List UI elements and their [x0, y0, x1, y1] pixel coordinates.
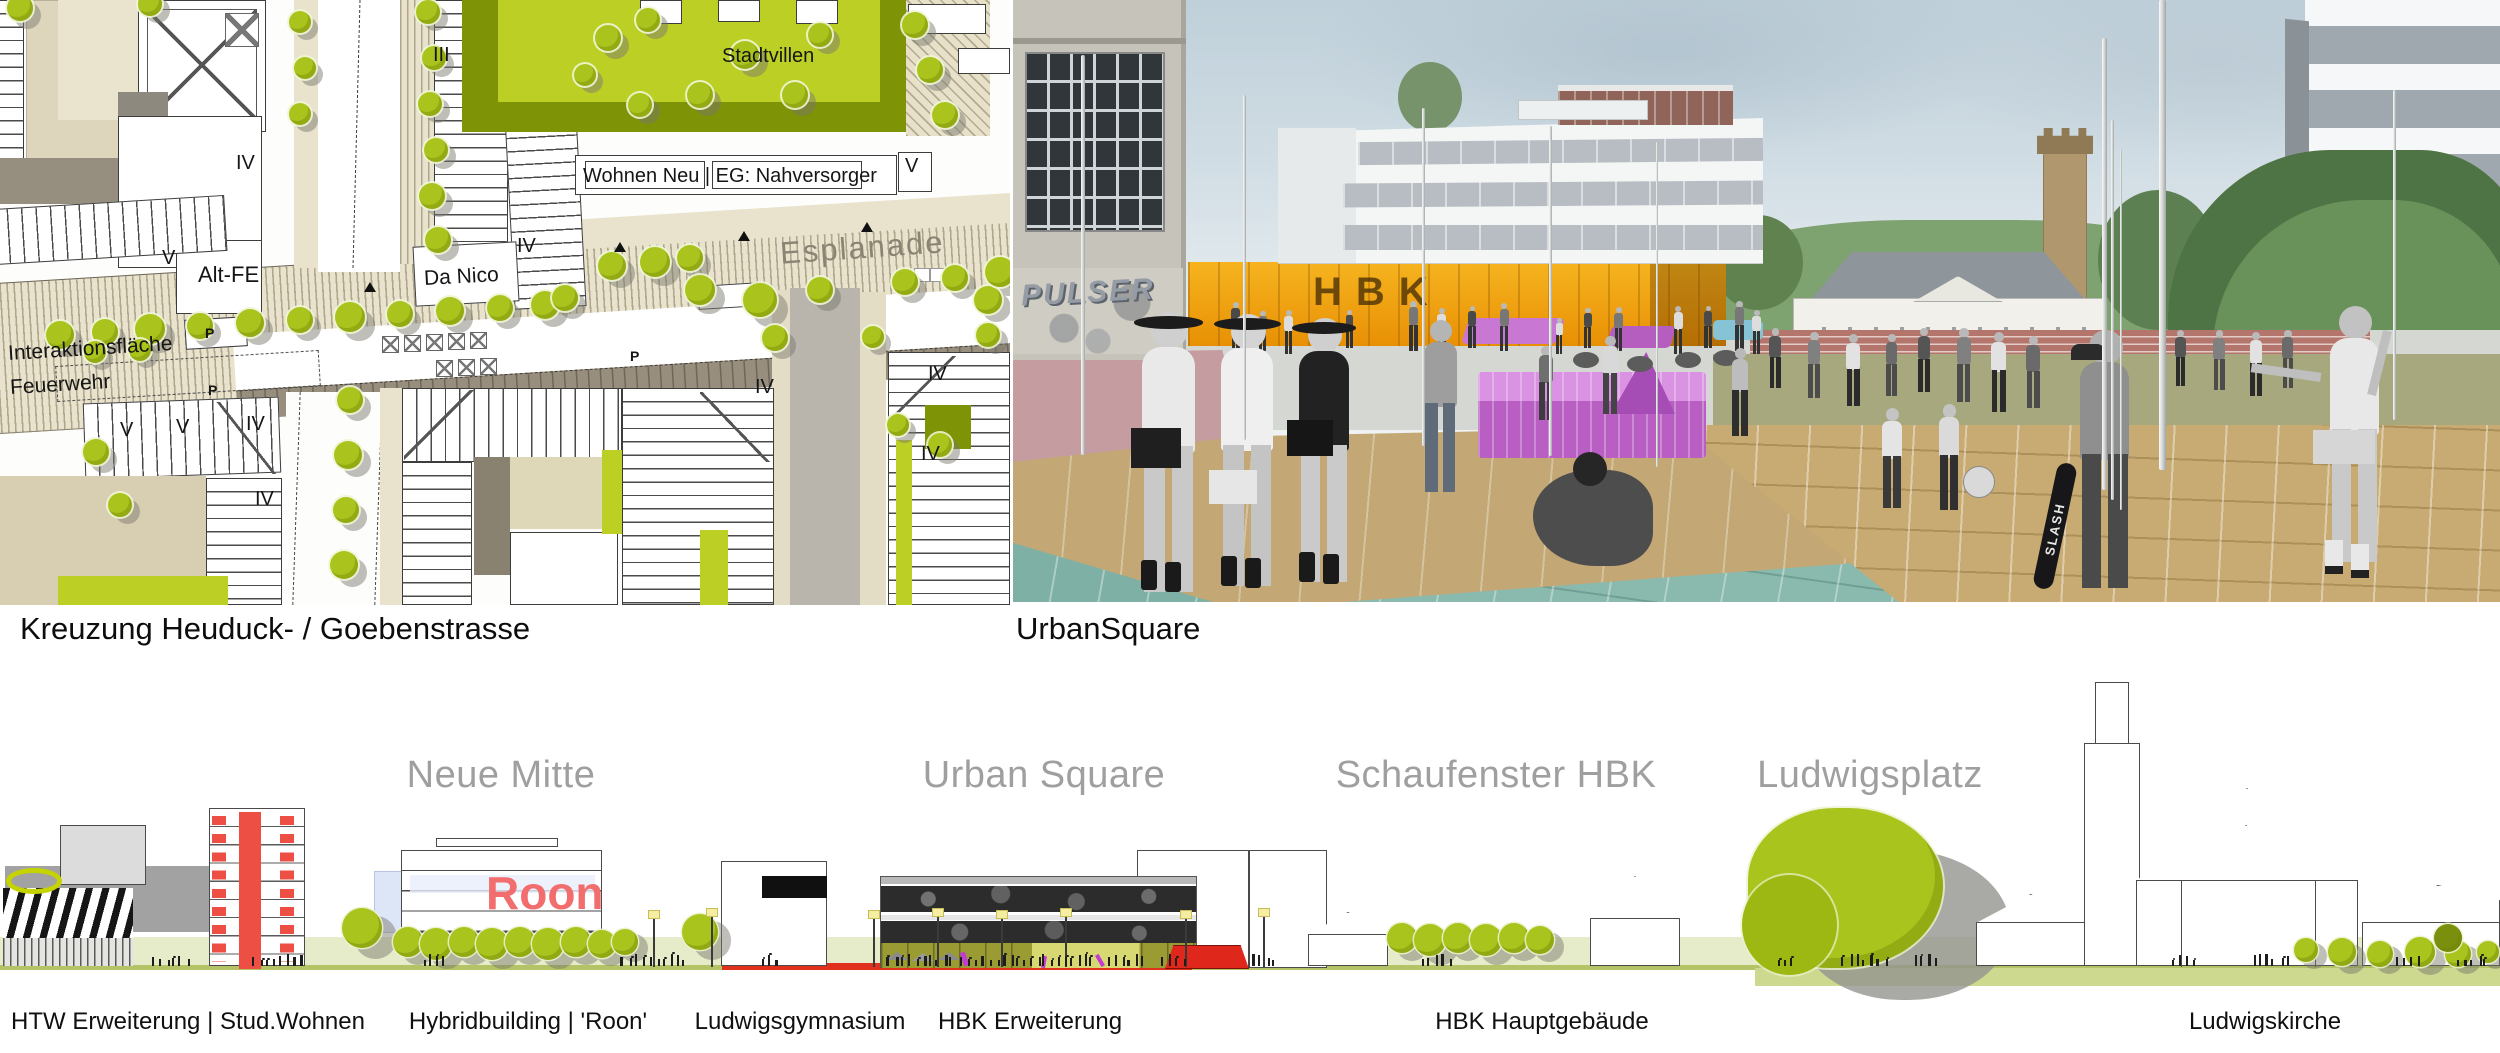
storey-label: IV — [517, 236, 536, 256]
paver-x-icon — [458, 359, 475, 376]
tree-icon — [289, 11, 311, 33]
tree-icon — [598, 252, 626, 280]
tree-icon — [862, 326, 884, 348]
tree-icon — [425, 227, 451, 253]
light-pole — [1656, 142, 1658, 467]
presentation-board: Wohnen Neu | EG: Nahversorger IIIIVVIVVI… — [0, 0, 2500, 1053]
storey-label: IV — [928, 364, 947, 384]
tree-icon — [782, 82, 808, 108]
tree-icon — [419, 183, 445, 209]
paver-x-icon — [448, 333, 465, 350]
paver-x-icon — [404, 335, 421, 352]
direction-marker-icon — [364, 282, 376, 292]
storey-label: IV — [755, 377, 774, 397]
tree-icon — [330, 551, 358, 579]
tree-icon — [640, 247, 670, 277]
tree-icon — [574, 64, 596, 86]
tree-icon — [333, 497, 359, 523]
light-pole — [1549, 126, 1552, 456]
tree-icon — [685, 275, 715, 305]
light-pole — [1081, 55, 1085, 455]
tree-icon — [636, 8, 660, 32]
storey-label: IV — [236, 153, 255, 173]
building-label: HTW Erweiterung | Stud.Wohnen — [11, 1008, 365, 1036]
storey-label: IV — [921, 444, 940, 464]
tree-icon — [942, 265, 968, 291]
storey-label: V — [905, 156, 918, 176]
building-label: Hybridbuilding | 'Roon' — [409, 1008, 647, 1036]
direction-marker-icon — [614, 242, 626, 252]
direction-marker-icon — [738, 231, 750, 241]
tree-icon — [418, 92, 442, 116]
light-pole — [1422, 108, 1425, 446]
tree-icon — [424, 138, 448, 162]
tree-icon — [287, 307, 313, 333]
tree-icon — [108, 493, 132, 517]
light-pole — [2120, 150, 2122, 510]
tree-icon — [762, 325, 788, 351]
tree-icon — [932, 102, 958, 128]
building-label: Ludwigskirche — [2189, 1008, 2341, 1036]
tree-icon — [387, 301, 413, 327]
site-plan-panel: Wohnen Neu | EG: Nahversorger IIIIVVIVVI… — [0, 0, 1010, 605]
building-label: HBK Erweiterung — [938, 1008, 1122, 1036]
storey-label: IV — [246, 414, 265, 434]
tree-icon — [335, 302, 365, 332]
parking-label: P — [205, 326, 214, 340]
parking-label: P — [208, 383, 217, 397]
tree-icon — [887, 414, 909, 436]
paver-x-icon — [470, 332, 487, 349]
storey-label: V — [120, 420, 133, 440]
tree-icon — [83, 439, 109, 465]
tree-icon — [917, 57, 943, 83]
tree-icon — [687, 82, 713, 108]
tree-icon — [595, 25, 621, 51]
elevation-strip: Neue MitteUrban SquareSchaufenster HBKLu… — [0, 670, 2500, 1053]
storey-label: III — [433, 45, 450, 65]
tree-icon — [337, 387, 363, 413]
parking-label: P — [630, 349, 639, 363]
tree-icon — [808, 23, 832, 47]
tree-icon — [487, 295, 513, 321]
tree-icon — [743, 283, 777, 317]
tree-icon — [236, 309, 264, 337]
paver-x-icon — [426, 334, 443, 351]
urban-square-rendering: PULSER HBK SLASH — [1013, 0, 2500, 602]
paver-x-icon — [436, 360, 453, 377]
tree-icon — [628, 93, 652, 117]
storey-label: V — [162, 248, 175, 268]
map-caption: Kreuzung Heuduck- / Goebenstrasse — [20, 613, 530, 644]
paver-x-icon — [382, 336, 399, 353]
light-pole — [2393, 90, 2396, 420]
light-pole — [1243, 95, 1246, 440]
alt-fe-label: Alt-FE — [198, 264, 259, 286]
stadtvillen-label: Stadtvillen — [722, 46, 814, 66]
tree-icon — [677, 245, 703, 271]
light-pole — [2111, 120, 2114, 500]
light-pole — [2159, 0, 2166, 470]
render-caption: UrbanSquare — [1016, 613, 1200, 644]
da-nico-label: Da Nico — [424, 264, 500, 289]
building-label: HBK Hauptgebäude — [1435, 1008, 1649, 1036]
tree-icon — [902, 12, 928, 38]
tree-icon — [976, 323, 1000, 347]
tree-icon — [892, 269, 918, 295]
storey-label: IV — [255, 489, 274, 509]
tree-icon — [552, 285, 578, 311]
tree-icon — [985, 257, 1010, 287]
tree-icon — [416, 0, 440, 24]
tree-icon — [436, 297, 464, 325]
building-label: Ludwigsgymnasium — [695, 1008, 906, 1036]
storey-label: V — [176, 417, 189, 437]
paver-x-icon — [480, 358, 497, 375]
tree-icon — [334, 441, 362, 469]
tree-icon — [294, 57, 316, 79]
tree-icon — [289, 103, 311, 125]
tree-icon — [807, 277, 833, 303]
light-pole — [2102, 38, 2107, 490]
tree-icon — [974, 286, 1002, 314]
